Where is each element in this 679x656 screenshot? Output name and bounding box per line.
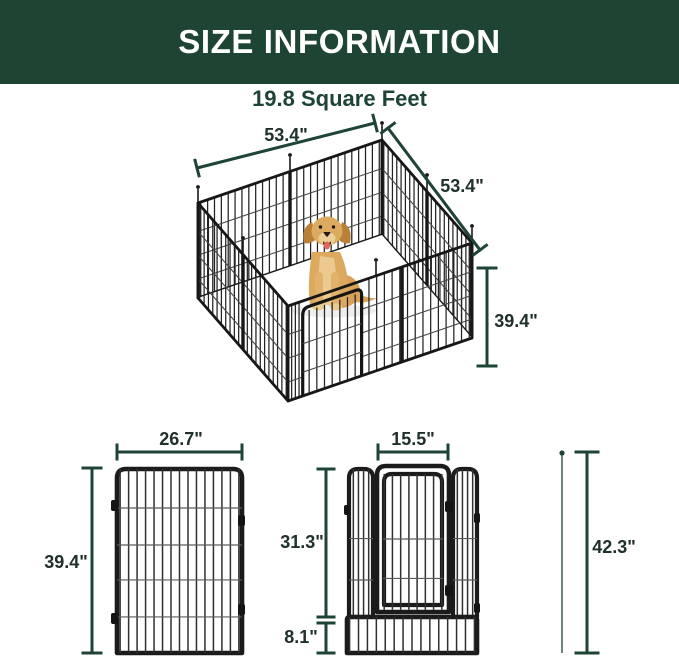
door-hinge-pin — [474, 513, 480, 523]
door-height-dimension: 31.3" — [280, 469, 334, 617]
panel-width-label: 26.7" — [159, 429, 203, 449]
header-banner: SIZE INFORMATION — [0, 0, 679, 84]
pen-height-label: 39.4" — [494, 311, 538, 331]
door-hinge-pin — [344, 505, 350, 515]
panel-hinge-pin — [111, 500, 118, 511]
playpen-3d-illustration: 53.4" 53.4" 39.4" — [140, 108, 560, 420]
pen-depth-label: 53.4" — [440, 176, 484, 196]
pen-width-label: 53.4" — [264, 125, 308, 145]
page-title: SIZE INFORMATION — [178, 23, 500, 61]
door-latch — [445, 501, 453, 512]
panel-diagram — [111, 469, 245, 653]
size-information-infographic: SIZE INFORMATION 19.8 Square Feet — [0, 0, 679, 656]
panel-diagrams: 26.7" 39.4" — [30, 425, 650, 656]
pen-width-dimension: 53.4" — [195, 115, 377, 176]
total-height-dimension: 42.3" — [559, 450, 635, 653]
total-height-label: 42.3" — [592, 537, 636, 557]
door-width-dimension: 15.5" — [378, 429, 448, 459]
panel-height-label: 39.4" — [44, 552, 88, 572]
panel-width-dimension: 26.7" — [117, 429, 242, 459]
door-latch — [445, 585, 453, 596]
door-panel-diagram — [344, 466, 480, 653]
door-height-label: 31.3" — [280, 532, 324, 552]
door-bottom-label: 8.1" — [284, 627, 318, 647]
panel-height-dimension: 39.4" — [44, 468, 101, 653]
panel-hinge-pin — [238, 515, 245, 526]
door-hinge-pin — [474, 603, 480, 613]
panel-hinge-pin — [238, 604, 245, 615]
pen-height-dimension: 39.4" — [478, 268, 538, 366]
door-bottom-dimension: 8.1" — [284, 623, 334, 653]
panel-hinge-pin — [111, 613, 118, 624]
door-width-label: 15.5" — [391, 429, 435, 449]
